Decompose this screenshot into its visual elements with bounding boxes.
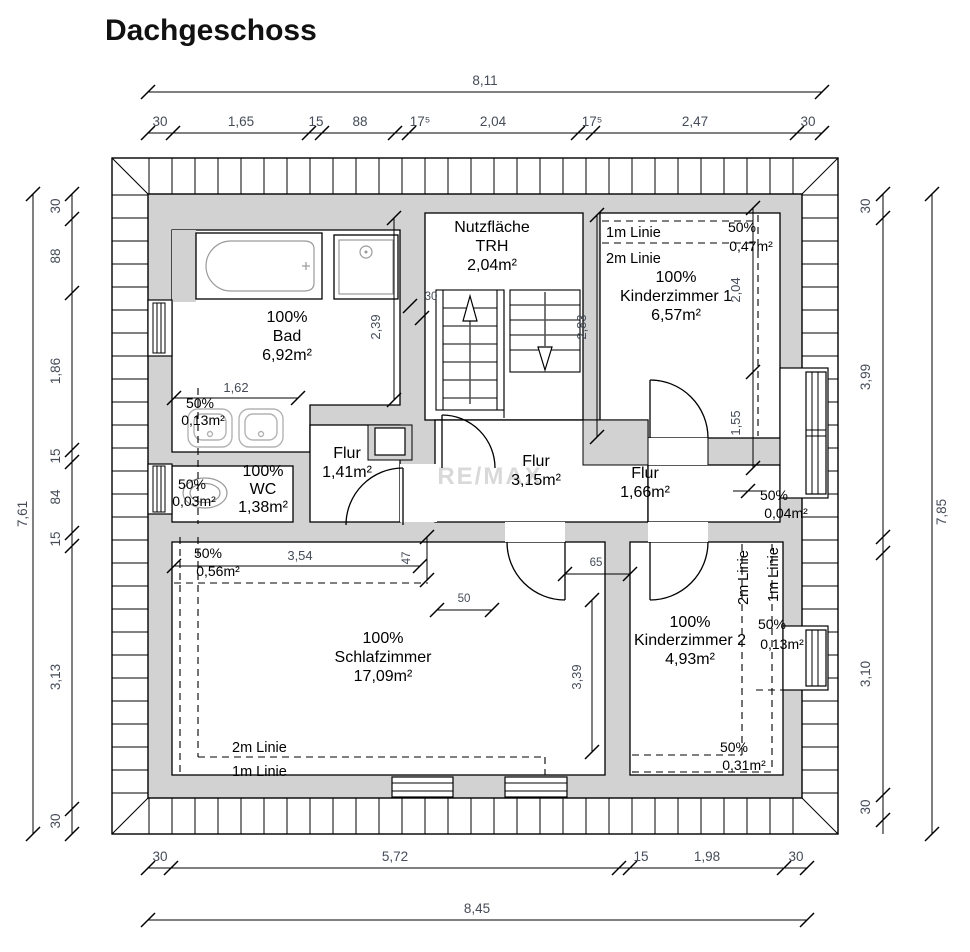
svg-text:17⁵: 17⁵ xyxy=(410,114,431,129)
label-schlafzimmer: 100% xyxy=(363,630,404,647)
svg-text:84: 84 xyxy=(48,489,63,505)
svg-text:30: 30 xyxy=(788,849,803,864)
dim-kz1-right-upper: 2,04 xyxy=(728,277,743,302)
svg-text:3,13: 3,13 xyxy=(48,664,63,690)
svg-text:3,10: 3,10 xyxy=(858,661,873,687)
svg-text:6,57m²: 6,57m² xyxy=(651,307,701,324)
svg-text:0,56m²: 0,56m² xyxy=(196,563,240,579)
dim-bad-height: 2,39 xyxy=(368,314,383,339)
eaves-hatch-top xyxy=(148,158,802,194)
label-flur-315: Flur xyxy=(522,453,550,470)
svg-text:0,03m²: 0,03m² xyxy=(172,493,216,509)
dimension-chain-top: 8,11 30 1,65 15 88 17⁵ 2,04 17⁵ 2,47 30 xyxy=(141,73,829,140)
svg-text:2,47: 2,47 xyxy=(682,114,708,129)
floor-plan-svg: Dachgeschoss RE/MAX xyxy=(0,0,970,952)
window-bottom-2 xyxy=(505,777,567,797)
zone-kinderzimmer2-mid: 50% xyxy=(758,616,786,632)
dim-door-65: 65 xyxy=(590,557,603,569)
svg-text:30: 30 xyxy=(858,799,873,814)
dim-bottom-total: 8,45 xyxy=(464,901,490,916)
label-kinderzimmer1: 100% xyxy=(656,269,697,286)
svg-text:0,13m²: 0,13m² xyxy=(760,636,804,652)
dim-top-total: 8,11 xyxy=(472,73,497,88)
dim-wall-50: 50 xyxy=(458,593,471,605)
svg-text:88: 88 xyxy=(352,114,367,129)
shower-icon xyxy=(334,235,398,299)
kz1-2m-linie: 2m Linie xyxy=(606,251,661,267)
svg-text:30: 30 xyxy=(152,114,167,129)
dim-right-total: 7,85 xyxy=(934,499,949,525)
svg-text:Bad: Bad xyxy=(273,328,301,345)
dim-left-total: 7,61 xyxy=(15,501,30,527)
dim-stair: 30 xyxy=(425,291,438,303)
window-bad-left xyxy=(148,300,172,356)
zone-schlafzimmer: 50% xyxy=(194,545,222,561)
floor-plan-page: Dachgeschoss RE/MAX xyxy=(0,0,970,952)
schlaf-2m-linie: 2m Linie xyxy=(232,740,287,756)
svg-text:15: 15 xyxy=(308,114,323,129)
label-wc: 100% xyxy=(243,463,284,480)
schlaf-1m-linie: 1m Linie xyxy=(232,764,287,780)
svg-text:1,86: 1,86 xyxy=(48,358,63,384)
svg-text:0,13m²: 0,13m² xyxy=(181,412,225,428)
zone-wc: 50% xyxy=(178,476,206,492)
dim-kz1-right-lower: 1,55 xyxy=(728,410,743,435)
svg-text:3,99: 3,99 xyxy=(858,364,873,390)
zone-kinderzimmer1: 50% xyxy=(728,219,756,235)
svg-text:5,72: 5,72 xyxy=(382,849,408,864)
svg-text:1,38m²: 1,38m² xyxy=(238,499,288,516)
svg-text:30: 30 xyxy=(858,198,873,213)
window-wc-left xyxy=(148,464,172,514)
svg-text:30: 30 xyxy=(152,849,167,864)
svg-text:1,65: 1,65 xyxy=(228,114,254,129)
dim-kz2-wall: 3,39 xyxy=(569,664,584,689)
doorway-kinderzimmer2 xyxy=(648,522,708,542)
svg-text:WC: WC xyxy=(250,481,277,498)
svg-text:30: 30 xyxy=(48,198,63,213)
bathtub-icon xyxy=(196,233,322,299)
svg-text:15: 15 xyxy=(48,531,63,546)
dim-wall-47: 47 xyxy=(401,552,413,565)
kz1-1m-linie: 1m Linie xyxy=(606,225,661,241)
dimension-chain-left: 30 88 1,86 15 84 15 3,13 30 7,61 xyxy=(15,187,79,841)
svg-text:17⁵: 17⁵ xyxy=(582,114,603,129)
window-right-dormer xyxy=(780,368,828,498)
svg-text:15: 15 xyxy=(48,448,63,463)
svg-text:1,41m²: 1,41m² xyxy=(322,464,372,481)
svg-text:6,92m²: 6,92m² xyxy=(262,347,312,364)
svg-text:0,47m²: 0,47m² xyxy=(729,238,773,254)
svg-text:3,15m²: 3,15m² xyxy=(511,472,561,489)
svg-text:2,04: 2,04 xyxy=(480,114,507,129)
dim-kz1-left: 2,83 xyxy=(574,314,589,339)
label-flur-141: Flur xyxy=(333,445,361,462)
kz2-2m-linie: 2m Linie xyxy=(736,550,752,605)
shaft-box xyxy=(375,428,405,455)
svg-text:0,04m²: 0,04m² xyxy=(764,505,808,521)
doorway-kz1 xyxy=(648,438,708,465)
doorway-schlafzimmer xyxy=(505,522,565,542)
svg-text:30: 30 xyxy=(800,114,815,129)
svg-text:Kinderzimmer 1: Kinderzimmer 1 xyxy=(620,288,732,305)
svg-text:4,93m²: 4,93m² xyxy=(665,651,715,668)
svg-text:Kinderzimmer 2: Kinderzimmer 2 xyxy=(634,632,746,649)
dimension-chain-bottom: 30 5,72 15 1,98 30 8,45 xyxy=(141,849,814,927)
wall-tab-corridor xyxy=(583,420,648,465)
svg-text:88: 88 xyxy=(48,248,63,263)
label-kinderzimmer2: 100% xyxy=(670,614,711,631)
page-title: Dachgeschoss xyxy=(105,14,317,47)
dimension-chain-right: 30 3,99 3,10 30 7,85 xyxy=(858,187,949,841)
svg-text:Schlafzimmer: Schlafzimmer xyxy=(335,649,433,666)
label-flur-166: Flur xyxy=(631,465,659,482)
eaves-hatch-left xyxy=(112,194,148,798)
dim-schlaf-top: 3,54 xyxy=(287,548,312,563)
svg-text:17,09m²: 17,09m² xyxy=(354,668,413,685)
dim-bad-width: 1,62 xyxy=(223,380,248,395)
svg-text:TRH: TRH xyxy=(476,238,509,255)
zone-flur: 50% xyxy=(760,487,788,503)
svg-text:0,31m²: 0,31m² xyxy=(722,757,766,773)
zone-kinderzimmer2-bottom: 50% xyxy=(720,739,748,755)
wall-patch-bad xyxy=(172,230,196,302)
window-bottom-1 xyxy=(392,777,453,797)
kz2-1m-linie: 1m Linie xyxy=(766,547,782,602)
washbasin-icon xyxy=(239,409,283,447)
zone-bad: 50% xyxy=(186,395,214,411)
svg-text:15: 15 xyxy=(633,849,648,864)
label-bad: 100% xyxy=(267,309,308,326)
svg-text:30: 30 xyxy=(48,813,63,828)
svg-text:2,04m²: 2,04m² xyxy=(467,257,517,274)
svg-text:1,98: 1,98 xyxy=(694,849,720,864)
doorway-flur141 xyxy=(400,464,437,522)
svg-text:1,66m²: 1,66m² xyxy=(620,484,670,501)
eaves-hatch-bottom xyxy=(148,798,802,834)
label-trh: Nutzfläche xyxy=(454,219,530,236)
